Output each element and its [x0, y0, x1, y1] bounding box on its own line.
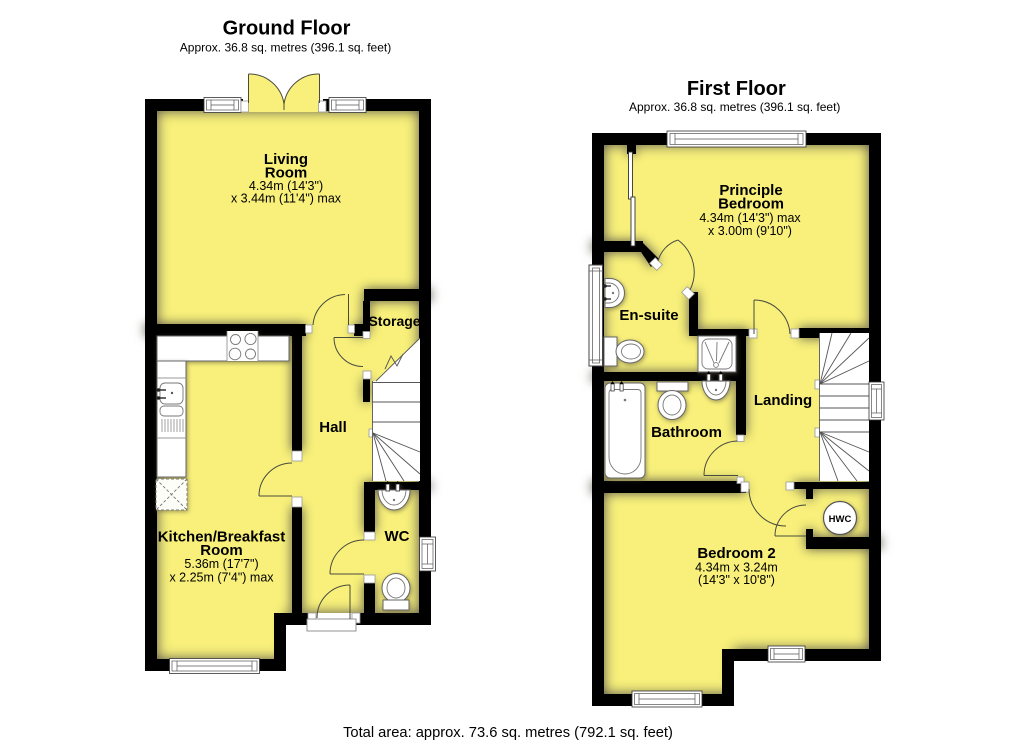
svg-text:Bedroom: Bedroom — [718, 196, 784, 213]
svg-text:Bathroom: Bathroom — [651, 424, 722, 441]
svg-text:Bedroom 2: Bedroom 2 — [697, 545, 775, 562]
svg-text:Total area: approx. 73.6 sq. m: Total area: approx. 73.6 sq. metres (792… — [343, 725, 673, 741]
svg-text:x 2.25m (7'4") max: x 2.25m (7'4") max — [169, 571, 274, 585]
svg-text:4.34m (14'3") max: 4.34m (14'3") max — [699, 211, 801, 225]
svg-text:Hall: Hall — [319, 419, 347, 436]
svg-text:(14'3" x 10'8"): (14'3" x 10'8") — [698, 573, 775, 587]
svg-text:En-suite: En-suite — [619, 307, 678, 324]
svg-text:WC: WC — [385, 528, 410, 545]
svg-text:First Floor: First Floor — [687, 78, 786, 100]
svg-text:x 3.44m (11'4") max: x 3.44m (11'4") max — [231, 192, 342, 206]
svg-text:Storage: Storage — [368, 313, 420, 329]
svg-text:HWC: HWC — [829, 514, 852, 525]
svg-text:x 3.00m (9'10"): x 3.00m (9'10") — [708, 224, 792, 238]
svg-text:Approx. 36.8 sq. metres (396.1: Approx. 36.8 sq. metres (396.1 sq. feet) — [629, 100, 840, 114]
svg-text:Landing: Landing — [754, 392, 812, 409]
svg-text:Approx. 36.8 sq. metres (396.1: Approx. 36.8 sq. metres (396.1 sq. feet) — [180, 41, 391, 55]
svg-text:5.36m (17'7"): 5.36m (17'7") — [184, 557, 258, 571]
svg-text:Ground Floor: Ground Floor — [223, 18, 351, 40]
